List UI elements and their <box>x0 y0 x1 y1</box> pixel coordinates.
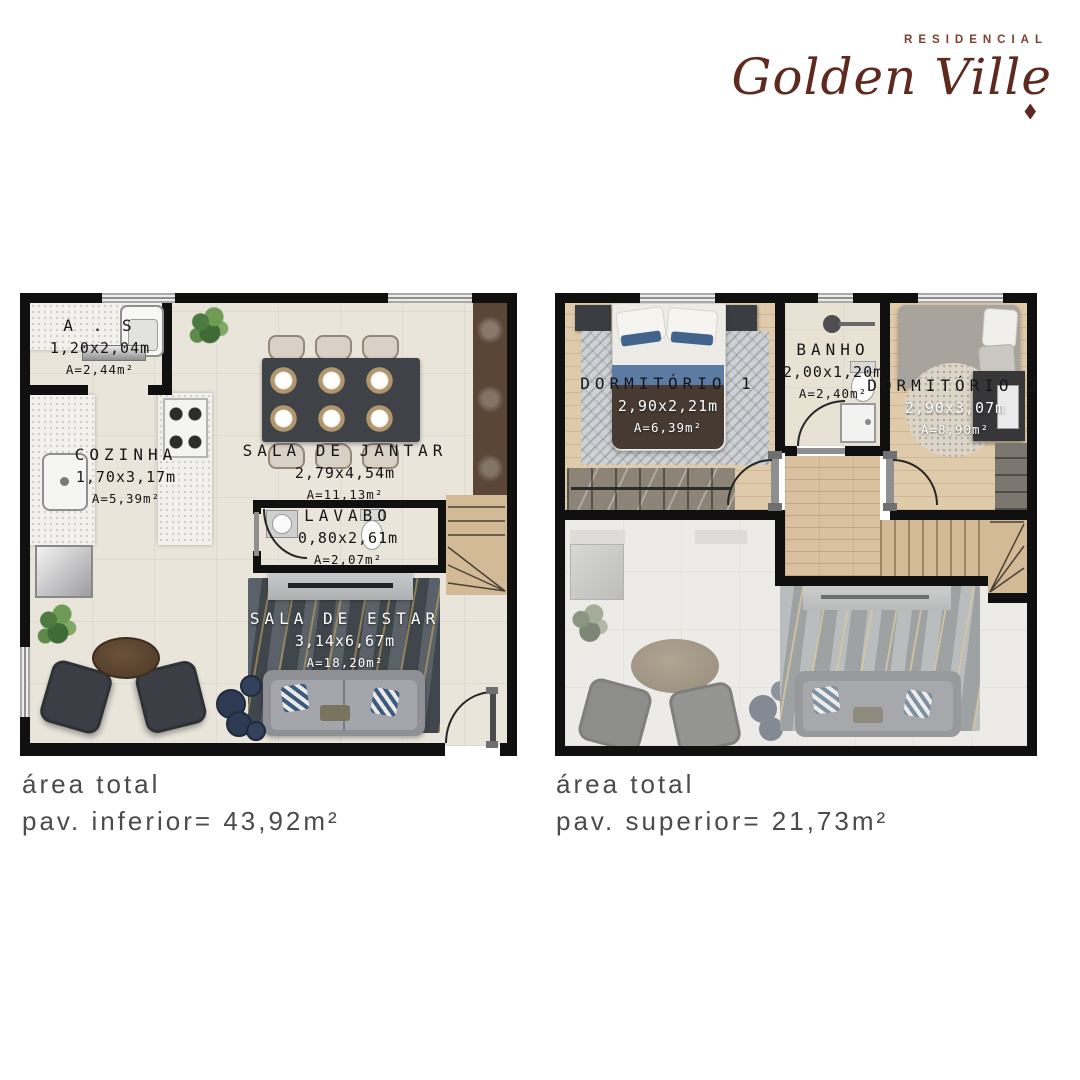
shower-arm <box>839 322 875 326</box>
room-name: A . S <box>50 315 150 337</box>
brand-diamond-icon: ◆ <box>1024 97 1036 122</box>
room-dims: 2,90x2,21m <box>580 395 756 418</box>
nightstand <box>721 305 757 331</box>
wall-segment <box>20 743 445 756</box>
brand-logo: RESIDENCIAL Golden Ville ◆ <box>731 34 1052 109</box>
ghost-throw-blanket <box>853 707 883 723</box>
brand-name: Golden Ville <box>731 46 1052 109</box>
room-area: A=2,44m² <box>50 360 150 380</box>
ghost-counter <box>570 530 625 544</box>
place-setting <box>366 367 393 394</box>
room-name: DORMITÓRIO 1 <box>580 373 756 395</box>
wall-segment <box>853 293 918 303</box>
stairs-icon <box>446 495 507 595</box>
floorplan-pav-inferior: A . S 1,20x2,04m A=2,44m² COZINHA 1,70x3… <box>20 293 517 756</box>
wardrobe-rail <box>571 487 731 490</box>
caption-line2: pav. inferior= 43,92m² <box>22 803 340 840</box>
wall-segment <box>555 746 1037 756</box>
door-leaf <box>771 455 779 507</box>
window <box>918 293 1003 303</box>
ghost-tv <box>821 595 929 599</box>
room-dims: 0,80x2,61m <box>298 527 398 550</box>
room-dims: 1,70x3,17m <box>75 466 177 489</box>
throw-blanket <box>320 705 350 721</box>
room-area: A=18,20m² <box>250 653 440 673</box>
side-table <box>246 721 266 741</box>
floorplan-poster: RESIDENCIAL Golden Ville ◆ <box>0 0 1080 1080</box>
room-dims: 1,20x2,04m <box>50 337 150 360</box>
ghost-armchair <box>667 680 743 756</box>
staircase-run <box>880 520 988 576</box>
room-area: A=6,39m² <box>580 418 756 438</box>
coffee-table <box>92 637 160 679</box>
wall-segment <box>988 593 1027 603</box>
caption-line1: área total <box>556 766 888 803</box>
room-label-cozinha: COZINHA 1,70x3,17m A=5,39m² <box>75 444 177 509</box>
room-area: A=11,13m² <box>243 485 448 505</box>
wall-segment <box>555 293 640 303</box>
fridge <box>35 545 93 598</box>
pillow <box>370 687 400 717</box>
place-setting <box>318 367 345 394</box>
wall-segment <box>785 446 797 456</box>
ghost-counter <box>695 530 747 544</box>
room-dims: 3,14x6,67m <box>250 630 440 653</box>
door-hinge <box>883 451 897 459</box>
wall-segment <box>555 293 565 756</box>
door-hinge <box>486 741 498 748</box>
wall-segment <box>1027 293 1037 756</box>
staircase-winder <box>988 520 1027 595</box>
wood-panel-buffet <box>473 303 507 495</box>
room-dims: 2,79x4,54m <box>243 462 448 485</box>
caption-pav-inferior: área total pav. inferior= 43,92m² <box>22 766 340 840</box>
place-setting <box>318 405 345 432</box>
room-area: A=2,07m² <box>298 550 398 570</box>
brand-residencial-label: RESIDENCIAL <box>731 34 1052 46</box>
room-label-lavabo: LAVABO 0,80x2,61m A=2,07m² <box>298 505 398 570</box>
window <box>640 293 715 303</box>
floorplan-pav-superior: DORMITÓRIO 1 2,90x2,21m A=6,39m² BANHO 2… <box>555 293 1037 756</box>
pillow <box>280 683 309 712</box>
room-name: BANHO <box>783 339 883 361</box>
wall-segment <box>148 385 172 395</box>
wall-segment <box>715 293 818 303</box>
room-label-as: A . S 1,20x2,04m A=2,44m² <box>50 315 150 380</box>
place-setting <box>270 367 297 394</box>
wall-segment <box>30 385 88 395</box>
wall-segment <box>775 576 988 586</box>
caption-line1: área total <box>22 766 340 803</box>
ghost-fridge <box>570 544 624 600</box>
hall-floor <box>785 456 880 576</box>
caption-pav-superior: área total pav. superior= 21,73m² <box>556 766 888 840</box>
door-leaf <box>254 512 259 556</box>
room-name: SALA DE ESTAR <box>250 608 440 630</box>
room-label-dormitorio2: DORMITÓRIO 2 2,90x3,07m A=8,90m² <box>867 375 1043 440</box>
wall-segment <box>507 293 517 756</box>
staircase <box>446 495 507 595</box>
window <box>20 647 30 717</box>
caption-line2: pav. superior= 21,73m² <box>556 803 888 840</box>
room-area: A=5,39m² <box>75 489 177 509</box>
side-table <box>240 675 262 697</box>
ghost-plant-icon <box>569 601 609 647</box>
room-label-dormitorio1: DORMITÓRIO 1 2,90x2,21m A=6,39m² <box>580 373 756 438</box>
window <box>388 293 472 303</box>
wall-segment <box>890 510 1027 520</box>
dresser-drawers <box>995 443 1027 510</box>
plant-icon <box>36 600 78 650</box>
room-name: DORMITÓRIO 2 <box>867 375 1043 397</box>
ghost-pillow <box>903 689 933 719</box>
room-name: COZINHA <box>75 444 177 466</box>
tv <box>288 583 393 588</box>
wall-segment <box>565 510 785 520</box>
nightstand <box>575 305 611 331</box>
door-hinge <box>768 451 782 459</box>
wall-segment <box>20 293 30 647</box>
ghost-pillow <box>811 685 840 714</box>
door-leaf <box>490 691 496 743</box>
place-setting <box>366 405 393 432</box>
window <box>818 293 853 303</box>
place-setting <box>270 405 297 432</box>
stairs-icon <box>988 520 1027 595</box>
room-area: A=8,90m² <box>867 420 1043 440</box>
wall-segment <box>175 293 388 303</box>
door-hinge <box>486 687 498 694</box>
room-name: SALA DE JANTAR <box>243 440 448 462</box>
wall-segment <box>20 293 102 303</box>
room-name: LAVABO <box>298 505 398 527</box>
wall-segment <box>438 508 446 565</box>
room-dims: 2,90x3,07m <box>867 397 1043 420</box>
room-label-sala-estar: SALA DE ESTAR 3,14x6,67m A=18,20m² <box>250 608 440 673</box>
plant-icon <box>188 305 230 347</box>
window <box>102 293 175 303</box>
room-label-sala-jantar: SALA DE JANTAR 2,79x4,54m A=11,13m² <box>243 440 448 505</box>
pillow <box>982 308 1019 348</box>
door-leaf <box>797 448 845 454</box>
kitchen-faucet <box>60 477 69 486</box>
wall-segment <box>775 520 785 576</box>
